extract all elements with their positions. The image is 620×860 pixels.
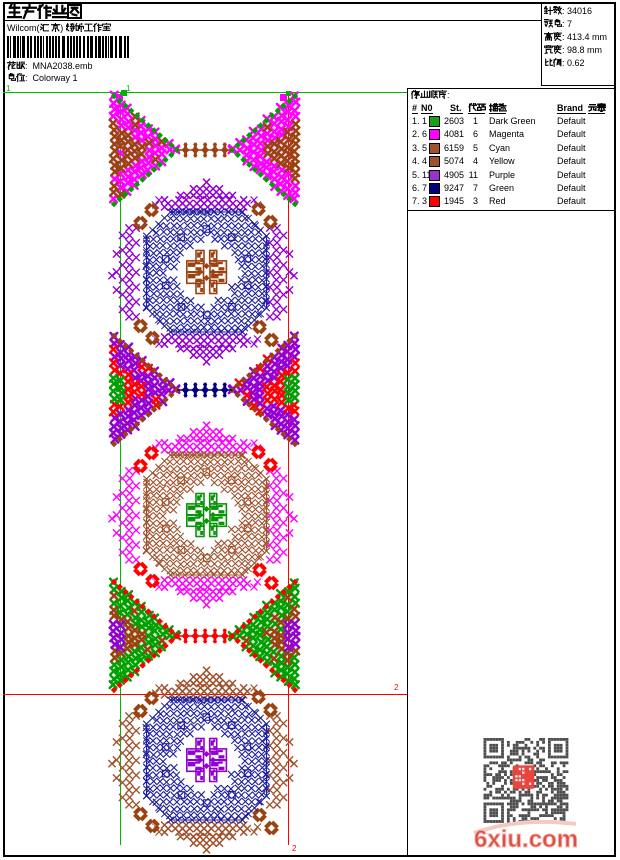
- svg-text:6xiu.com: 6xiu.com: [474, 826, 578, 853]
